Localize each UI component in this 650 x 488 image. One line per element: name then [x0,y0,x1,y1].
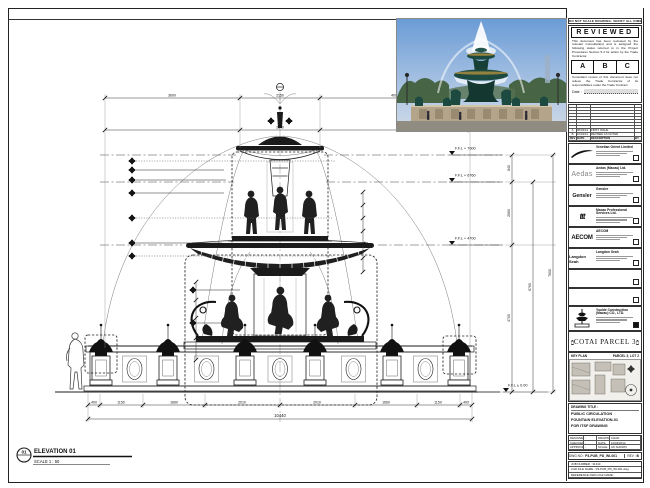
project-banner: COTAI PARCEL 3 [568,331,642,352]
consultant-block-aecom: AECOM AECOM [568,227,642,248]
banner-post-icon [636,334,639,350]
photo-background-tower [545,55,550,83]
review-stamp-paragraph-1: This document has been reviewed by the r… [572,40,638,59]
dwg-no-label: DWG NO : [569,454,584,458]
cad-file-label: CAD FILE NAME : [571,467,595,471]
key-plan: KEY PLAN PARCEL 3, LOT 2 [568,352,642,402]
consultant-name: Aedas (Macau) Ltd. [596,167,640,171]
gensler-logo: Gensler [569,186,595,205]
consultant-name: Langdon Seah [596,251,640,255]
level-datum-lines [100,155,503,245]
svg-text:6760: 6760 [528,283,532,291]
elevation-title: 01 - ELEVATION 01 SCALE 1 : 50 [17,448,132,465]
svg-text:1660: 1660 [382,400,390,404]
svg-text:400: 400 [91,400,97,404]
aedas-logo: Aedas [569,165,595,184]
scale-label: SCALE [597,445,610,450]
review-status-options: A B C [571,60,639,74]
svg-text:1150: 1150 [434,400,442,404]
svg-text:2150: 2150 [276,93,284,97]
rev-label: REV : [627,454,635,458]
svg-text:2140: 2140 [276,125,284,129]
status-option-c[interactable]: C [617,61,638,73]
svg-text:F.F.L + 7600: F.F.L + 7600 [455,147,476,151]
review-stamp-title: REVIEWED [571,27,639,38]
svg-text:3600: 3600 [168,93,176,97]
consultant-name: Macau Professional Services Ltd. [596,209,640,216]
svg-text:1150: 1150 [117,400,125,404]
cad-file-value: P3-PUB_PD_WI-001.dwg [596,467,629,471]
job-number-label: JOB NUMBER : [571,462,592,466]
svg-text:2010: 2010 [238,400,246,404]
ttt-logo: ttt [569,207,595,226]
svg-text:F.F.L ± 0.00: F.F.L ± 0.00 [508,384,527,388]
approved-value: - [584,445,597,450]
key-plan-note: PARCEL 3, LOT 2 [613,354,639,358]
empty-consultant-box [568,288,642,306]
consultant-block-aedas: Aedas Aedas (Macau) Ltd. [568,164,642,185]
review-date-label: Date : [572,90,582,94]
drawing-title-label: DRAWING TITLE : [571,405,639,411]
consultant-name: Gensler [596,188,640,192]
consultant-block-venetian: Venetian Orient Limited [568,143,642,164]
drawing-title-line: PUBLIC CIRCULATION [571,412,639,417]
status-option-a[interactable]: A [572,61,594,73]
review-stamp-paragraph-2: Consultant review of this document does … [572,76,638,88]
rev-value: B [637,454,639,458]
file-info-rows: JOB NUMBER : 31310 CAD FILE NAME : P3-PU… [568,461,642,479]
langdon-seah-logo: Langdon Seah [569,249,595,268]
revision-table: A05/03/14 FIRST ISSUE B10/04/14 REVISED … [568,104,642,142]
consultant-checkbox[interactable] [633,297,639,303]
job-number-value: 31310 [592,462,600,466]
svg-text:SCALE 1 : 50: SCALE 1 : 50 [34,459,60,464]
contractor-name: Youlde Construction (Macau) CO., LTD. [596,309,640,316]
aecom-logo: AECOM [569,228,595,247]
svg-text:1660: 1660 [170,400,178,404]
status-option-b[interactable]: B [594,61,616,73]
consultant-checkbox[interactable] [633,279,639,285]
drawing-sheet: F.F.L + 7600 F.F.L + 6760 F.F.L + 4700 F… [0,0,650,488]
review-date-fill-line[interactable] [584,89,638,94]
svg-text:2010: 2010 [313,400,321,404]
dwg-no-value: P3-PUB_PD_WI-001 [585,454,617,458]
consultant-checkbox[interactable] [633,260,639,266]
svg-text:F.F.L + 6760: F.F.L + 6760 [455,174,476,178]
review-date-row: Date : [572,89,638,94]
photo-pavement [397,121,566,131]
contractor-block: Youlde Construction (Macau) CO., LTD. [568,306,642,331]
svg-text:4700: 4700 [507,314,511,322]
signoff-grid: DESIGNED - DRAWN CHAD CHECKED - DATE 10/… [568,435,642,451]
svg-text:ELEVATION 01: ELEVATION 01 [34,449,76,455]
reference-file-label: REFERENCE DWG FILE NAME : [571,473,614,477]
consultant-block-langdon-seah: Langdon Seah Langdon Seah [568,248,642,269]
contractor-checkbox [633,322,639,328]
review-stamp: REVIEWED This document has been reviewed… [568,25,642,103]
contractor-fountain-logo-icon [569,307,595,330]
key-plan-map [569,359,641,401]
svg-text:01: 01 [21,450,27,455]
scale-figure-person [66,333,84,389]
empty-consultant-box [568,269,642,288]
scale-value: AS SHOWN [610,445,641,450]
consultant-checkbox[interactable] [633,218,639,224]
sands-swoosh-logo-icon [569,144,595,163]
consultant-name: AECOM [596,230,640,234]
consultant-block-mpsl: ttt Macau Professional Services Ltd. [568,206,642,227]
stamp-header-note: DO NOT SCALE DRAWING. VERIFY ALL DIMENSI… [568,18,642,24]
revision-table-header: REVDATE DESCRIPTIONBY [569,137,641,141]
centerline [276,83,283,422]
drawing-title-line: FOR ITSF DRAWING [571,424,639,429]
svg-text:7600: 7600 [548,269,552,277]
approved-label: APPROVED [569,445,584,450]
consultant-name: Venetian Orient Limited [596,146,640,150]
fountain-linework [55,106,500,392]
key-plan-label: KEY PLAN [571,354,587,358]
fountain-reference-photo [396,18,567,132]
consultant-checkbox[interactable] [633,239,639,245]
drawing-title-block: DRAWING TITLE : PUBLIC CIRCULATION FOUNT… [568,403,642,434]
consultant-block-gensler: Gensler Gensler [568,185,642,206]
svg-text:-: - [23,457,25,462]
dwg-number-row: DWG NO : P3-PUB_PD_WI-001 REV : B [568,452,642,460]
title-block-column: DO NOT SCALE DRAWING. VERIFY ALL DIMENSI… [566,8,643,481]
svg-text:F.F.L + 4700: F.F.L + 4700 [455,237,476,241]
consultant-checkbox[interactable] [633,155,639,161]
svg-text:840: 840 [507,165,511,171]
svg-text:400: 400 [463,400,469,404]
consultant-checkbox[interactable] [633,197,639,203]
drawing-title-line: FOUNTAIN ELEVATION-01 [571,418,639,423]
project-name: COTAI PARCEL 3 [574,338,636,346]
svg-text:2060: 2060 [507,209,511,217]
svg-text:10440: 10440 [274,413,286,418]
consultant-checkbox[interactable] [633,176,639,182]
